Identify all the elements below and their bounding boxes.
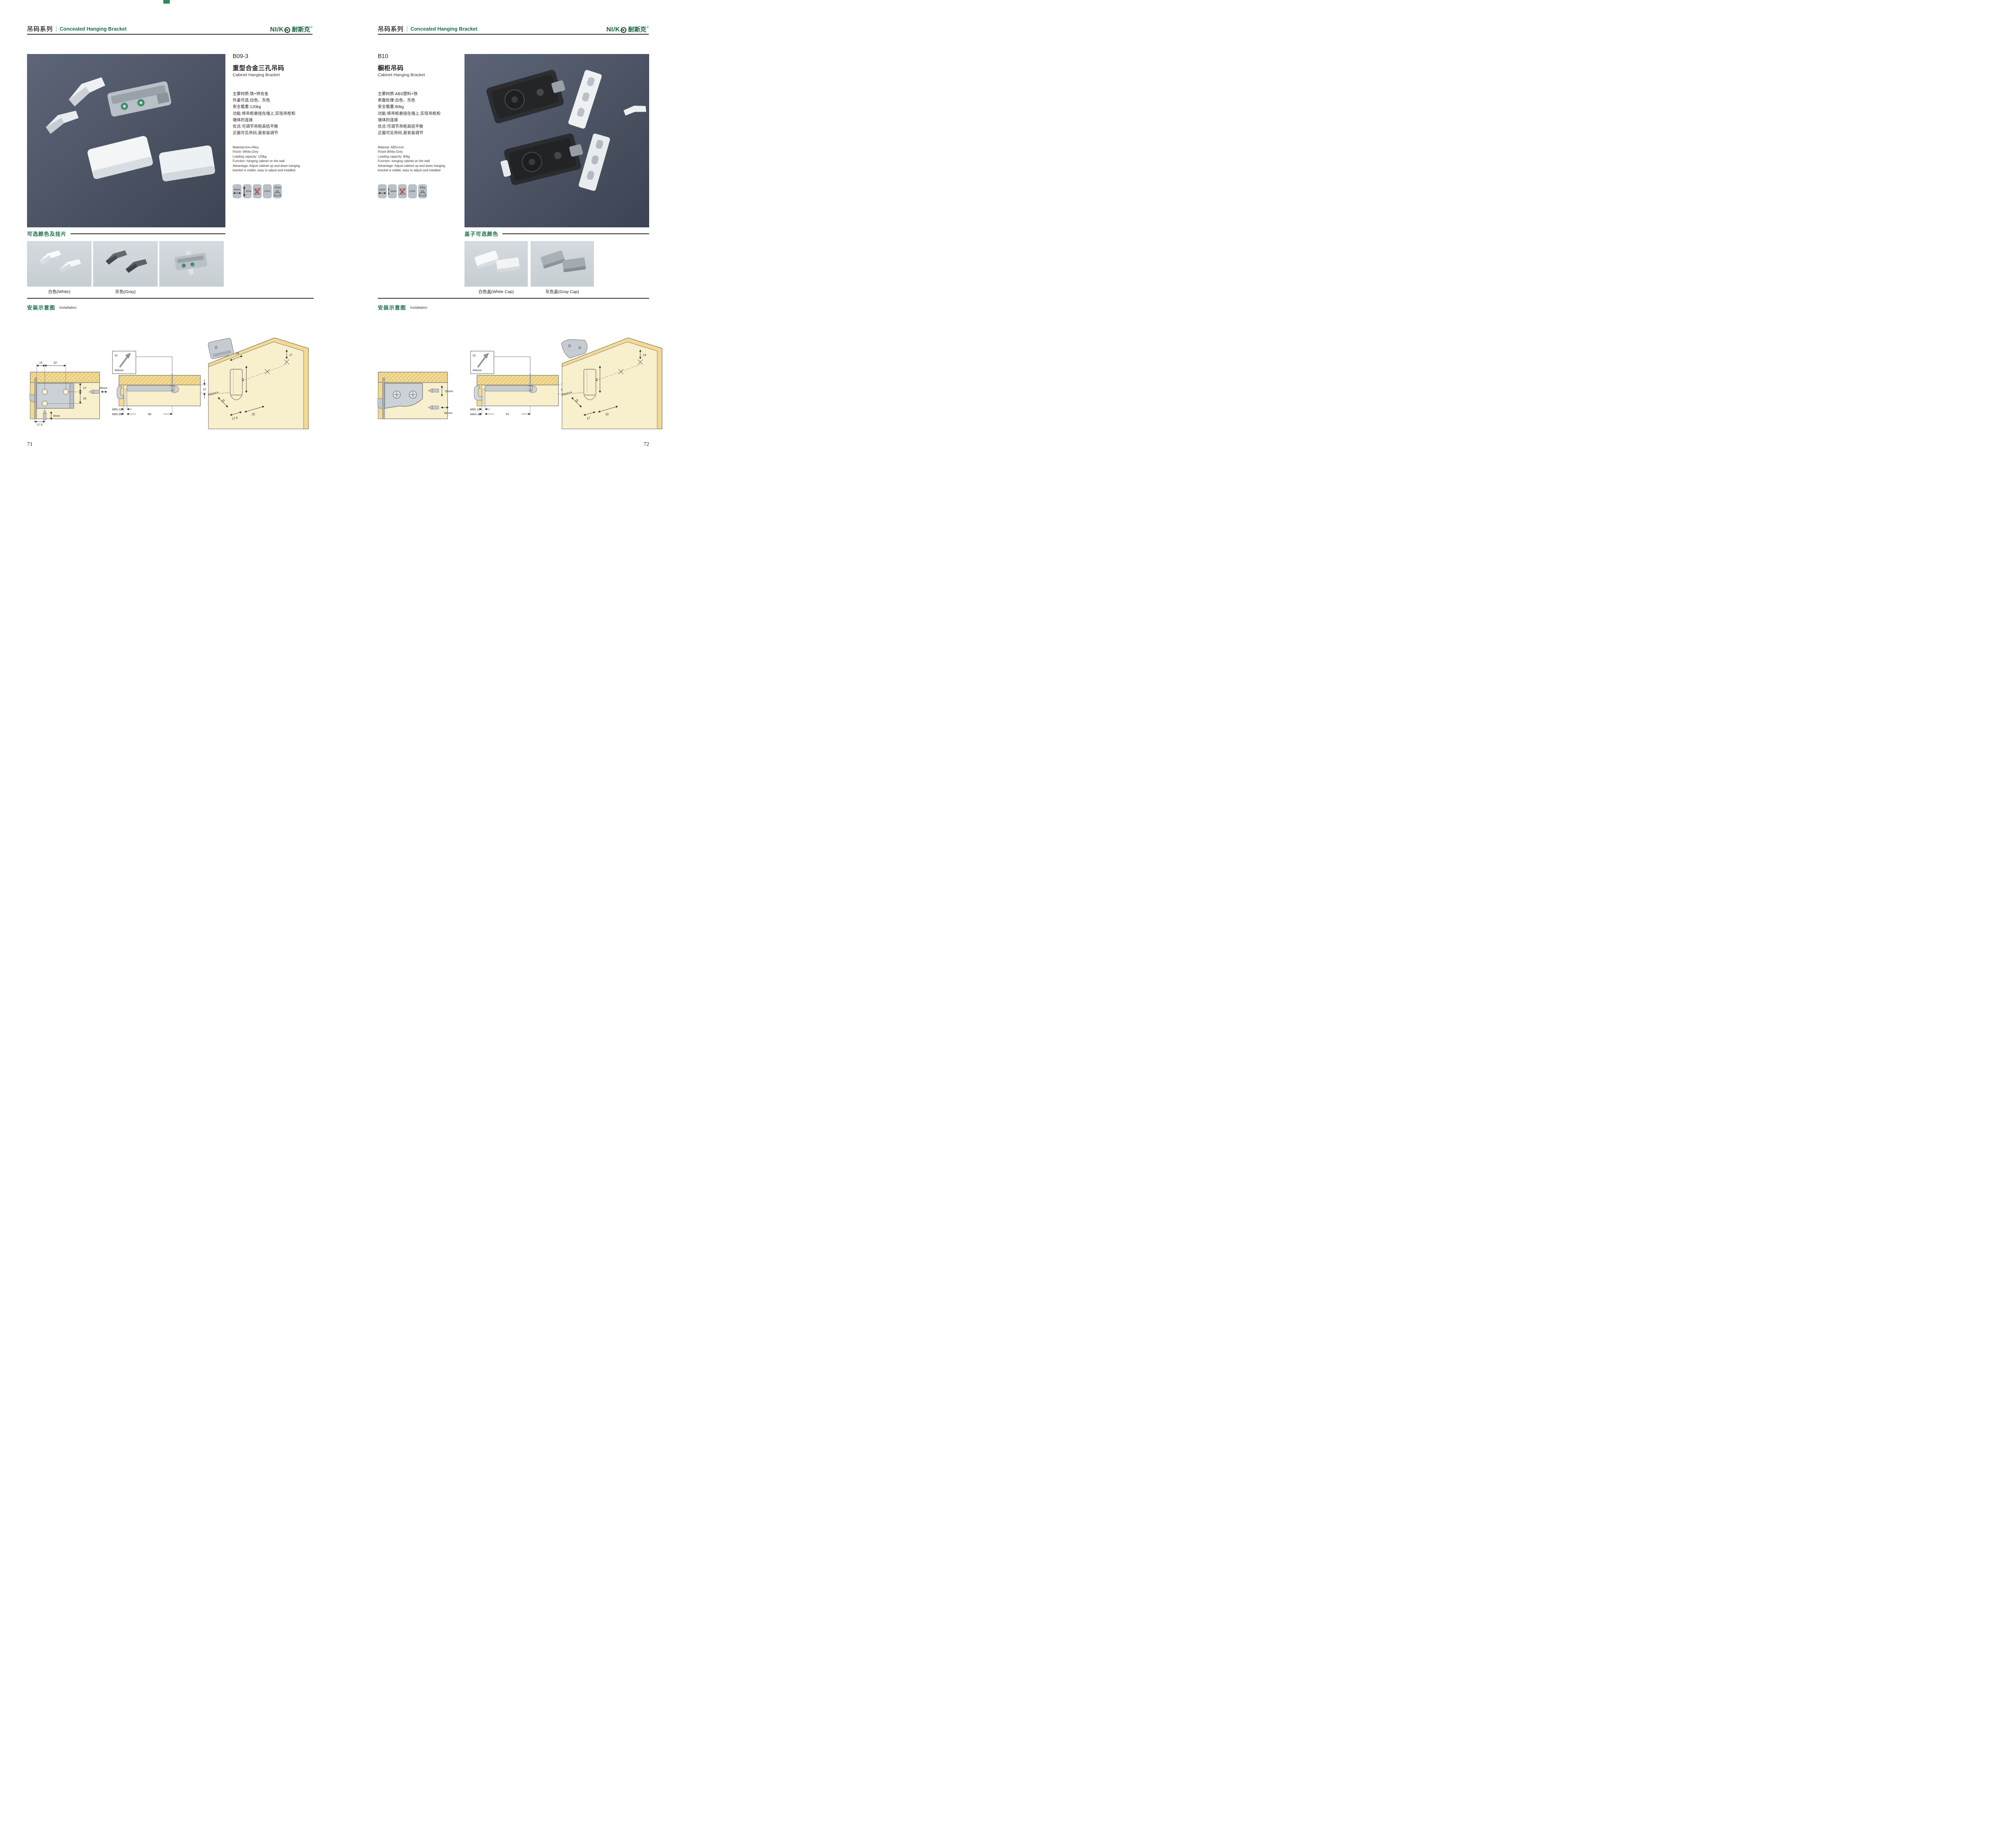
spec-line: 表面处理:白色、灰色 <box>378 98 441 104</box>
load-label: 120Kg <box>274 187 281 189</box>
svg-text:6mm: 6mm <box>53 414 60 418</box>
spec-line: 功能:将吊柜悬挂在墙上,实现吊柜和 <box>233 111 296 117</box>
catalog-spread: 吊码系列 Concealed Hanging Bracket NI/K 耐斯克 … <box>0 0 676 462</box>
lga-label: LGA <box>264 190 271 193</box>
spec-line: Advantage: Adjust cabinet up and down ha… <box>378 164 445 168</box>
spec-line: 优点:可调节吊柜高低平衡 <box>233 124 296 130</box>
series-title-cn: 吊码系列 <box>27 25 53 33</box>
page-72: 吊码系列 Concealed Hanging Bracket NI/K 耐斯克 … <box>338 0 676 462</box>
header-rule <box>27 34 312 35</box>
spec-line: 优点:可调节吊柜高低平衡 <box>378 124 441 130</box>
icon-badge-load: 80Kg <box>418 184 427 198</box>
spec-line: 墙体的连接 <box>233 117 296 124</box>
svg-text:Φ4mm: Φ4mm <box>473 368 482 372</box>
spec-line: 安全载重:80kg <box>378 104 441 110</box>
specs-en: Material:Iron+Alloy Finish: White,Grey L… <box>233 145 300 173</box>
logo-cjk-text: 耐斯克 <box>628 27 646 33</box>
swatch-caption-gray: 灰色(Gray) <box>93 289 158 295</box>
icon-badge-depth: 10mm <box>378 184 387 198</box>
spec-line: Function: hanging cabinet on the wall <box>378 159 445 163</box>
series-heading: 吊码系列 Concealed Hanging Bracket <box>27 25 127 33</box>
specs-cn: 主要材质:铁+锌合金 外盖可选:白色、灰色 安全载重:120kg 功能:将吊柜悬… <box>233 91 296 137</box>
icon-badge-cert: LGA <box>263 184 272 198</box>
spec-line: 功能:将吊柜悬挂在墙上,实现吊柜和 <box>378 111 441 117</box>
install-title-en: Installation <box>59 306 77 310</box>
spec-line: Finish: White,Grey <box>233 150 300 154</box>
install-diagram-section-right: 2x Φ4mm 18 MIN.12 <box>470 350 566 417</box>
white-clip-graphic <box>27 241 92 287</box>
icon-badge-cert: LGA <box>408 184 417 198</box>
registered-mark: ® <box>647 26 649 29</box>
section-rule <box>71 233 225 234</box>
colors-section-title: 盖子可选颜色 <box>464 230 498 237</box>
product-photo-b10 <box>464 54 649 227</box>
svg-text:12: 12 <box>203 387 206 391</box>
product-name-cn: 重型合金三孔吊码 <box>233 63 284 72</box>
horizontal-arrow-icon <box>233 192 241 194</box>
svg-text:15mm: 15mm <box>445 389 453 393</box>
swatch-caption-gray-cap: 灰色盖(Gray Cap) <box>531 289 594 295</box>
svg-text:10mm: 10mm <box>444 411 452 415</box>
spec-line: 正面可见吊码,易安装调节 <box>378 130 441 137</box>
svg-text:16: 16 <box>236 352 239 355</box>
metal-bracket-graphic <box>159 241 224 287</box>
product-code: B10 <box>378 53 388 60</box>
svg-text:2x: 2x <box>473 354 476 357</box>
section-divider <box>27 298 314 299</box>
vertical-arrow-icon <box>243 186 246 197</box>
svg-text:25: 25 <box>83 397 86 400</box>
depth-label: 10mm <box>379 189 385 191</box>
svg-text:MIN.12: MIN.12 <box>470 408 480 411</box>
install-diagram-plate-left: 16 32 17 25 20mm 6mm 17.5 <box>29 360 111 426</box>
spec-line: 主要材质:铁+锌合金 <box>233 91 296 98</box>
product-info: B10 橱柜吊码 Cabinet Hanging Bracket 主要材质:AB… <box>378 53 462 206</box>
page-number: 71 <box>27 441 33 448</box>
spec-line: Material: ABS+iron <box>378 145 445 150</box>
swatch-caption-white-cap: 白色盖(White Cap) <box>464 289 528 295</box>
horizontal-arrow-icon <box>378 192 386 194</box>
svg-text:2x: 2x <box>115 354 118 357</box>
page-number: 72 <box>636 441 649 448</box>
header-divider <box>407 26 407 32</box>
svg-text:MIN.35: MIN.35 <box>112 412 122 416</box>
svg-text:17: 17 <box>289 353 292 357</box>
product-photo-b09-3 <box>27 54 225 227</box>
specs-cn: 主要材质:ABS塑料+铁 表面处理:白色、灰色 安全载重:80kg 功能:将吊柜… <box>378 91 441 137</box>
series-title-en: Concealed Hanging Bracket <box>410 26 477 32</box>
gray-cap-graphic <box>531 241 594 287</box>
product-code: B09-3 <box>233 53 248 60</box>
depth-label: 20mm <box>234 189 240 191</box>
product-info: B09-3 重型合金三孔吊码 Cabinet Hanging Bracket 主… <box>233 53 317 206</box>
no-drill-icon <box>254 187 261 196</box>
install-section-heading: 安装示意图 Installation <box>378 304 499 311</box>
page-71: 吊码系列 Concealed Hanging Bracket NI/K 耐斯克 … <box>0 0 338 462</box>
section-rule <box>502 233 649 234</box>
icon-badge-no-drill <box>398 184 407 198</box>
spec-line: Function: hanging cabinet on the wall <box>233 159 300 163</box>
spec-line: Material:Iron+Alloy <box>233 145 300 150</box>
feature-icons: 20mm 6mm <box>233 184 282 198</box>
install-title-en: Installation <box>410 306 427 310</box>
colors-section-title: 可选颜色及挂片 <box>27 230 67 237</box>
specs-en: Material: ABS+iron Finish:White,Grey Loa… <box>378 145 445 173</box>
nisko-logo-target-icon <box>621 27 627 33</box>
install-section-heading: 安装示意图 Installation <box>27 304 148 311</box>
product-name-cn: 橱柜吊码 <box>378 63 404 72</box>
vertical-arrow-icon <box>388 186 389 197</box>
install-diagram-cabinet-left: 16 17 42 RMAX4 16 17.5 32 <box>207 332 317 442</box>
svg-text:42: 42 <box>241 378 245 381</box>
icon-badge-load: 120Kg <box>273 184 282 198</box>
spec-line: 墙体的连接 <box>378 117 441 124</box>
diameter-label: 6mm <box>246 190 252 193</box>
svg-text:58: 58 <box>148 412 151 416</box>
svg-text:16: 16 <box>39 361 42 364</box>
lga-label: LGA <box>410 190 416 193</box>
series-title-en: Concealed Hanging Bracket <box>60 26 127 32</box>
load-label: 80Kg <box>420 187 425 189</box>
spec-line: Loading capacity: 80kg <box>378 154 445 159</box>
colors-section-heading: 盖子可选颜色 <box>464 230 649 237</box>
install-title-cn: 安装示意图 <box>378 304 406 311</box>
spec-line: Loading capacity: 120kg <box>233 154 300 159</box>
spec-line: bracket is visible, easy to adjust and i… <box>378 168 445 173</box>
install-diagram-section-left: 2x Φ4mm 12 MIN.12 <box>112 350 208 417</box>
svg-text:MIN.12: MIN.12 <box>112 408 122 411</box>
weight-icon <box>419 190 427 196</box>
spec-line: 安全载重:120kg <box>233 104 296 110</box>
swatch-caption-white: 白色(White) <box>27 289 92 295</box>
spec-line: 外盖可选:白色、灰色 <box>233 98 296 104</box>
spec-line: 主要材质:ABS塑料+铁 <box>378 91 441 98</box>
header-rule <box>378 34 649 35</box>
nisko-logo: NI/K 耐斯克 ® <box>270 27 312 33</box>
icon-badge-depth: 20mm <box>233 184 242 198</box>
page-header: 吊码系列 Concealed Hanging Bracket NI/K 耐斯克 … <box>378 22 649 33</box>
logo-cjk-text: 耐斯克 <box>292 27 310 33</box>
icon-badge-diameter: 15mm <box>388 184 397 198</box>
diameter-label: 15mm <box>390 190 397 193</box>
svg-text:20mm: 20mm <box>99 386 108 390</box>
svg-text:67: 67 <box>506 412 509 416</box>
svg-text:MAX.30: MAX.30 <box>470 412 481 416</box>
spec-line: 正面可见吊码,易安装调节 <box>233 130 296 137</box>
svg-text:42: 42 <box>595 378 598 381</box>
logo-latin-text: NI/K <box>270 27 284 33</box>
install-diagram-cabinet-right: 13 42 RMAX4 19 17 32 <box>560 332 671 442</box>
page-header: 吊码系列 Concealed Hanging Bracket NI/K 耐斯克 … <box>27 22 312 33</box>
spec-line: bracket is visible, easy to adjust and i… <box>233 168 300 173</box>
logo-latin-text: NI/K <box>606 27 620 33</box>
spec-line: Finish:White,Grey <box>378 150 445 154</box>
swatch-white-caps <box>464 241 528 287</box>
nisko-logo: NI/K 耐斯克 ® <box>606 27 649 33</box>
svg-text:Φ4mm: Φ4mm <box>115 368 124 372</box>
svg-text:17.5: 17.5 <box>37 423 43 426</box>
section-divider <box>378 298 649 299</box>
swatch-metal-bracket <box>159 241 224 287</box>
registered-mark: ® <box>310 26 312 29</box>
svg-text:32: 32 <box>54 361 57 364</box>
product-name-en: Cabinet Hanging Bracket <box>233 73 280 77</box>
series-title-cn: 吊码系列 <box>378 25 404 33</box>
no-drill-icon <box>399 187 406 196</box>
icon-badge-diameter: 6mm <box>243 184 252 198</box>
weight-icon <box>273 190 281 196</box>
feature-icons: 10mm 15mm <box>378 184 427 198</box>
install-title-cn: 安装示意图 <box>27 304 55 311</box>
white-cap-graphic <box>464 241 528 287</box>
product-name-en: Cabinet Hanging Bracket <box>378 73 425 77</box>
gray-clip-graphic <box>93 241 158 287</box>
svg-text:17: 17 <box>83 386 86 390</box>
series-heading: 吊码系列 Concealed Hanging Bracket <box>378 25 477 33</box>
icon-badge-no-drill <box>253 184 262 198</box>
svg-text:13: 13 <box>643 353 646 357</box>
swatch-gray-clips <box>93 241 158 287</box>
install-diagram-plate-right: 15mm 10mm <box>377 360 459 426</box>
swatch-white-clips <box>27 241 92 287</box>
nisko-logo-target-icon <box>284 27 290 33</box>
header-divider <box>56 26 56 32</box>
spec-line: Advantage: Adjust cabinet up and down ha… <box>233 164 300 168</box>
swatch-gray-caps <box>531 241 594 287</box>
colors-section-heading: 可选颜色及挂片 <box>27 230 225 237</box>
